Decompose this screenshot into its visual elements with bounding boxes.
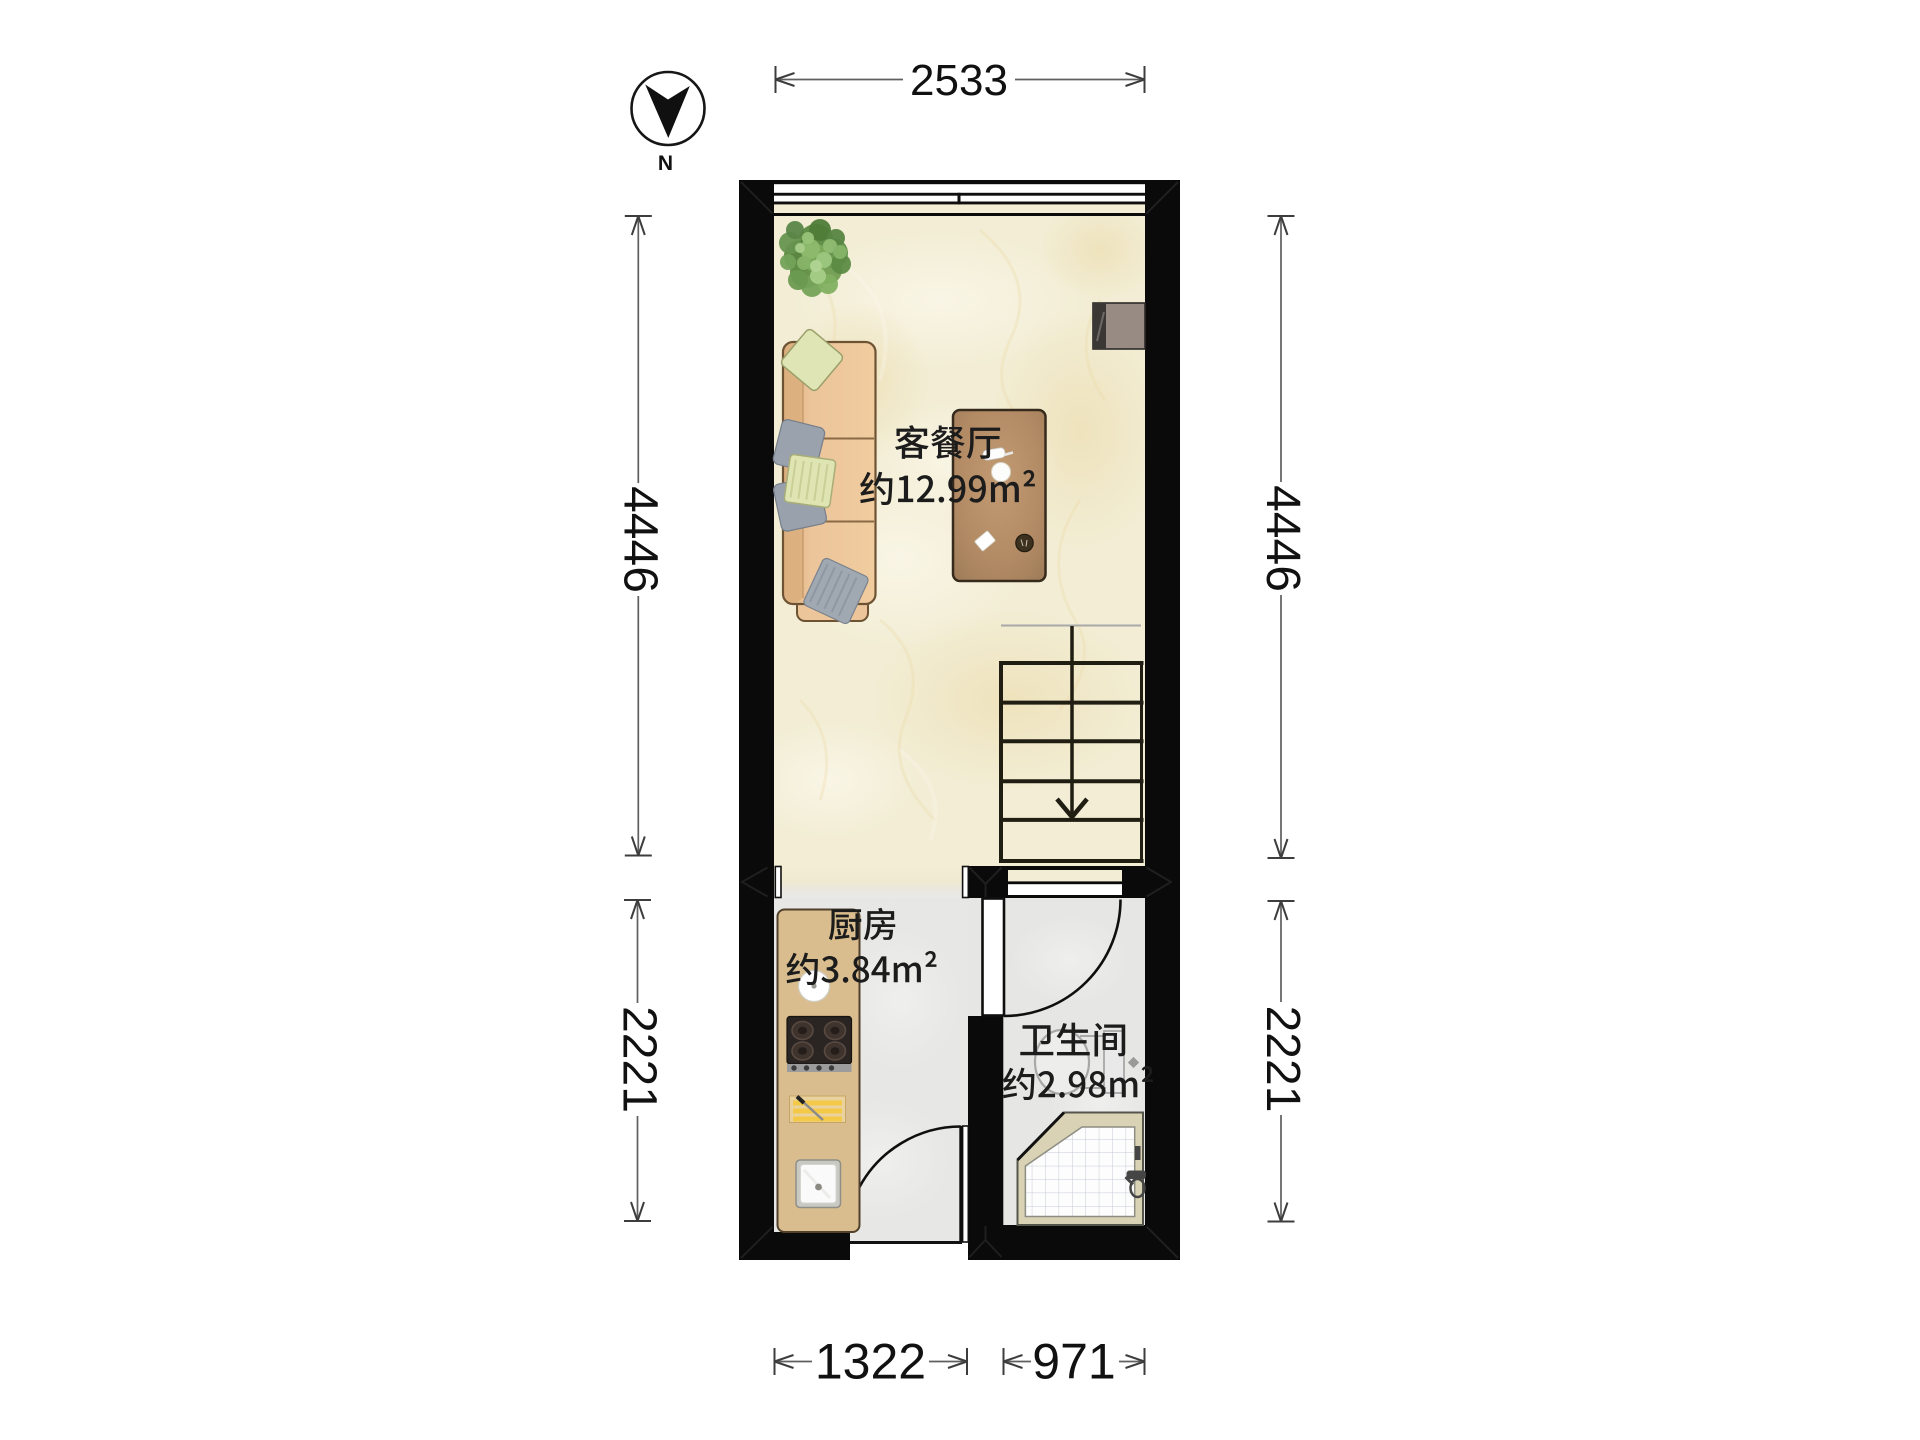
svg-text:1322: 1322 [815, 1334, 926, 1390]
svg-text:971: 971 [1032, 1334, 1115, 1390]
svg-text:2221: 2221 [613, 1006, 666, 1113]
svg-text:2221: 2221 [1256, 1006, 1309, 1113]
svg-text:4446: 4446 [1256, 485, 1309, 592]
svg-text:2533: 2533 [910, 56, 1008, 105]
svg-text:N: N [658, 152, 673, 175]
svg-text:4446: 4446 [614, 486, 667, 593]
